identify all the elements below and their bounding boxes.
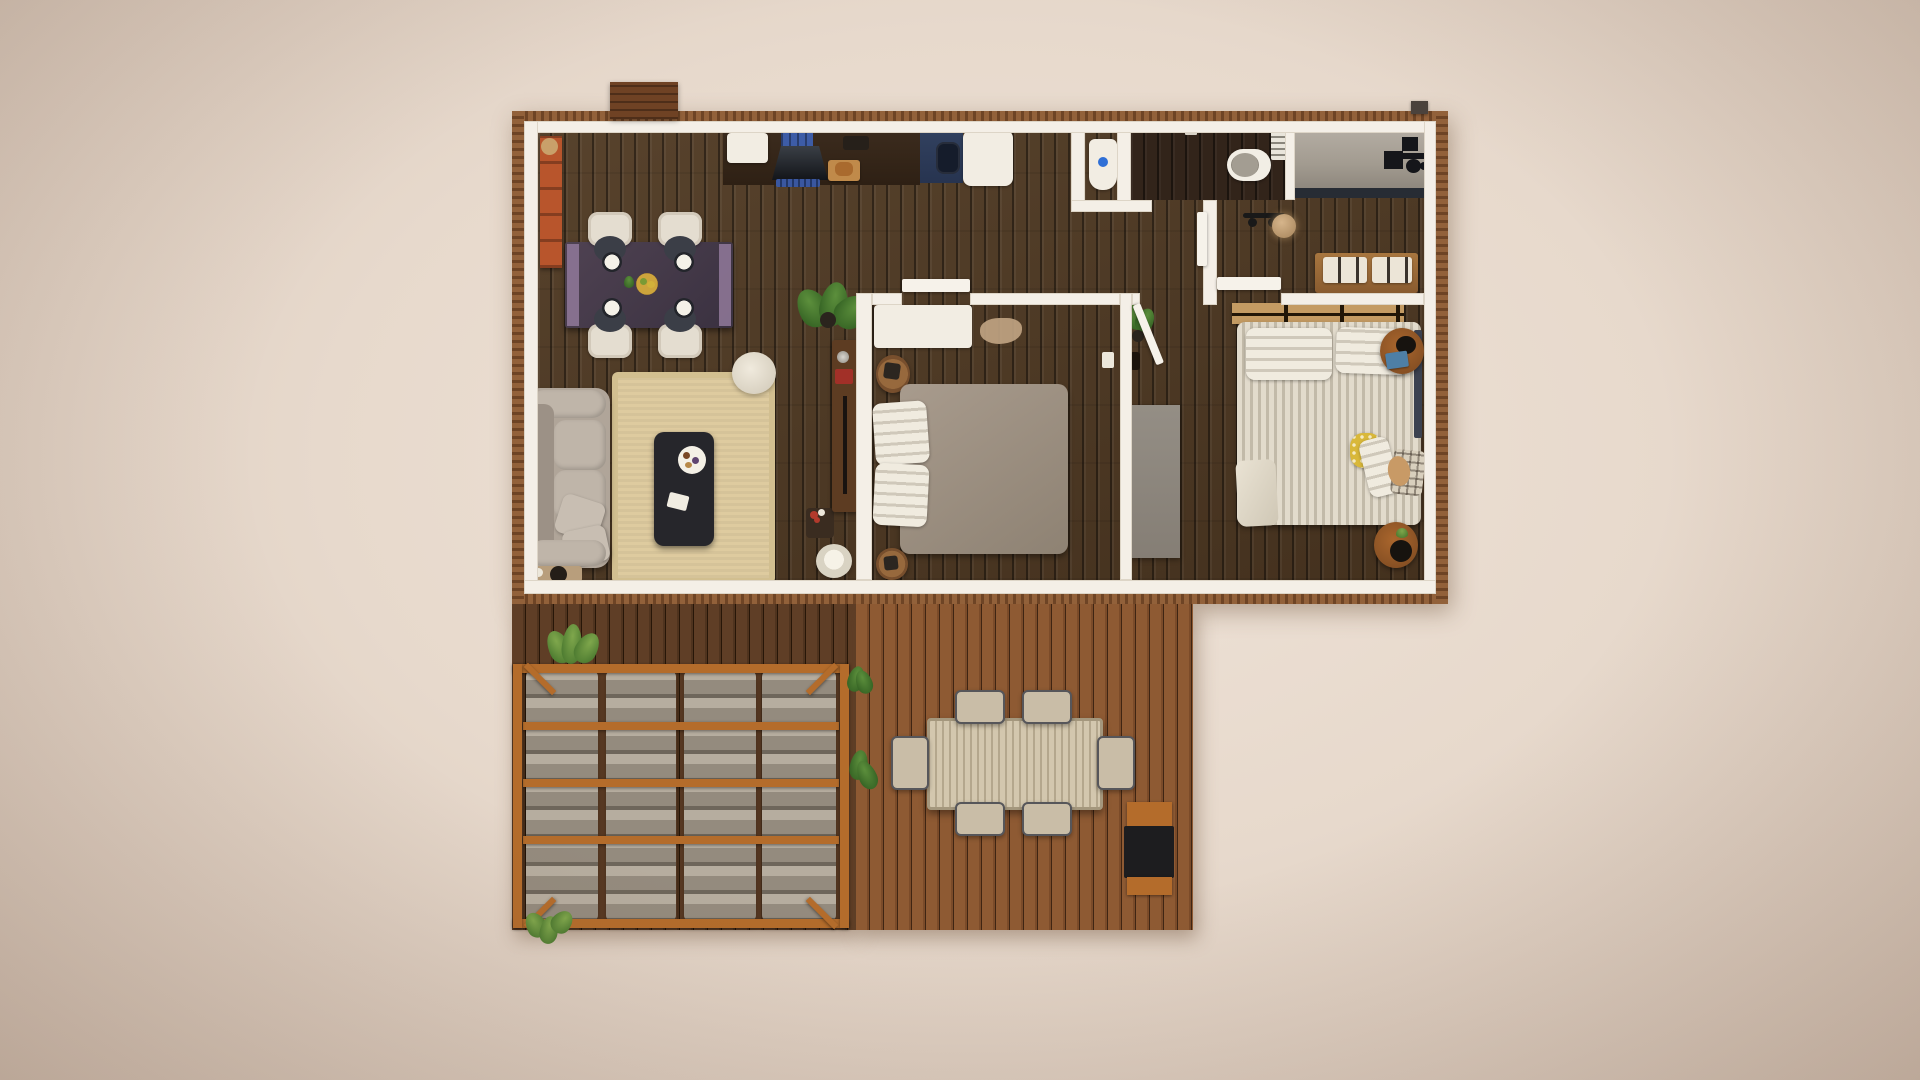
door-bathroom: [1197, 212, 1207, 266]
place-plate: [674, 298, 694, 318]
stump-candle: [883, 362, 901, 380]
roof-vent: [1411, 101, 1428, 114]
outdoor-chair: [891, 736, 929, 790]
donut: [683, 452, 690, 459]
pergola-canopy: [762, 670, 836, 922]
sofa-armrest: [530, 540, 606, 566]
wardrobe: [1130, 405, 1180, 558]
bread-loaf: [835, 162, 853, 176]
dresser-tray: [1372, 257, 1412, 283]
wall-exterior-left: [524, 121, 538, 594]
wall-bedrooms-divider: [1120, 293, 1132, 580]
pergola-beam: [523, 722, 839, 730]
bed2-pillow: [1246, 328, 1332, 380]
pergola-canopy: [606, 670, 676, 922]
kitchen-sink: [936, 142, 960, 174]
door-walkin-closet: [1217, 277, 1281, 290]
bed2-duvet-fold: [1235, 459, 1278, 527]
fruit-lemon: [647, 281, 655, 288]
roof-trim-bottom: [512, 594, 1448, 604]
teddy-bear: [1272, 214, 1296, 238]
coat-hook: [1248, 218, 1257, 227]
roof-trim-left: [512, 111, 524, 604]
place-plate: [674, 252, 694, 272]
wall-walkin-bottom: [1281, 293, 1424, 305]
counter-tray: [843, 136, 869, 150]
fridge: [963, 130, 1013, 186]
chimney-wood: [610, 82, 678, 119]
plant-pot: [820, 312, 836, 328]
table-runner-left: [567, 244, 579, 326]
place-plate: [602, 252, 622, 272]
dresser-tray: [1323, 257, 1367, 283]
shower-glass-edge: [1295, 188, 1424, 198]
range-hood: [772, 146, 828, 180]
outdoor-chair: [955, 802, 1005, 836]
tall-shelf-rust: [540, 136, 562, 268]
wall-hook: [1102, 352, 1114, 368]
door-bedroom1: [902, 279, 970, 292]
bedroom1-desk: [874, 305, 972, 348]
floorplan-render: [0, 0, 1920, 1080]
roof-trim-right: [1436, 111, 1448, 604]
outdoor-chair: [1097, 736, 1135, 790]
table-sprig: [624, 276, 634, 288]
sofa-seat-cushion: [554, 420, 606, 470]
bed1-pillow: [872, 400, 930, 466]
wall-living-bedroom1: [856, 293, 872, 580]
wall-closet-right: [1117, 121, 1131, 212]
wall-exterior-right: [1424, 121, 1436, 594]
outdoor-chair: [955, 690, 1005, 724]
floor-lamp: [816, 544, 852, 578]
fruit-lime: [640, 278, 647, 285]
shower-mixer: [1384, 151, 1403, 169]
wall-bath-bottom: [1071, 200, 1152, 212]
wall-exterior-bottom: [524, 580, 1436, 594]
wall-closet-left: [1071, 121, 1085, 212]
toilet-lid: [1231, 153, 1259, 177]
outdoor-dining-table: [927, 718, 1103, 810]
heater-indicator: [1098, 157, 1108, 167]
grill-cart-top: [1127, 802, 1172, 827]
succulent: [1396, 528, 1408, 538]
donut: [685, 462, 692, 468]
outdoor-chair: [1022, 802, 1072, 836]
flower-white: [818, 509, 825, 516]
wall-hall-segment: [970, 293, 1120, 305]
pergola-frame-left: [513, 664, 522, 928]
vase-black: [1390, 540, 1412, 562]
table-runner-right: [719, 244, 731, 326]
dishwasher: [727, 133, 768, 163]
grill-cart-body: [1124, 826, 1174, 878]
flower-red: [814, 517, 820, 523]
console-canister: [837, 351, 849, 363]
grill-cart-bottom: [1127, 877, 1172, 895]
pouf: [732, 352, 776, 394]
pergola-beam: [523, 779, 839, 787]
book-blue: [1385, 351, 1409, 370]
pergola-canopy: [526, 670, 598, 922]
bed1-pillow: [872, 463, 929, 528]
pergola-beam: [523, 836, 839, 844]
stump-candle: [883, 555, 898, 570]
pergola-frame-right: [840, 664, 849, 928]
console-red-box: [835, 369, 853, 384]
wall-hall-segment: [872, 293, 902, 305]
pergola-canopy: [684, 670, 756, 922]
donut: [692, 457, 699, 464]
console-handle: [843, 396, 847, 494]
outdoor-chair: [1022, 690, 1072, 724]
shower-head: [1406, 159, 1421, 173]
pallet-headboard: [1232, 303, 1404, 324]
dish-rack: [776, 179, 820, 187]
shelf-stool: [541, 138, 558, 155]
place-plate: [602, 298, 622, 318]
pergola-frame-top: [513, 664, 849, 673]
wall-exterior-top: [524, 121, 1436, 133]
shower-control: [1402, 137, 1418, 151]
